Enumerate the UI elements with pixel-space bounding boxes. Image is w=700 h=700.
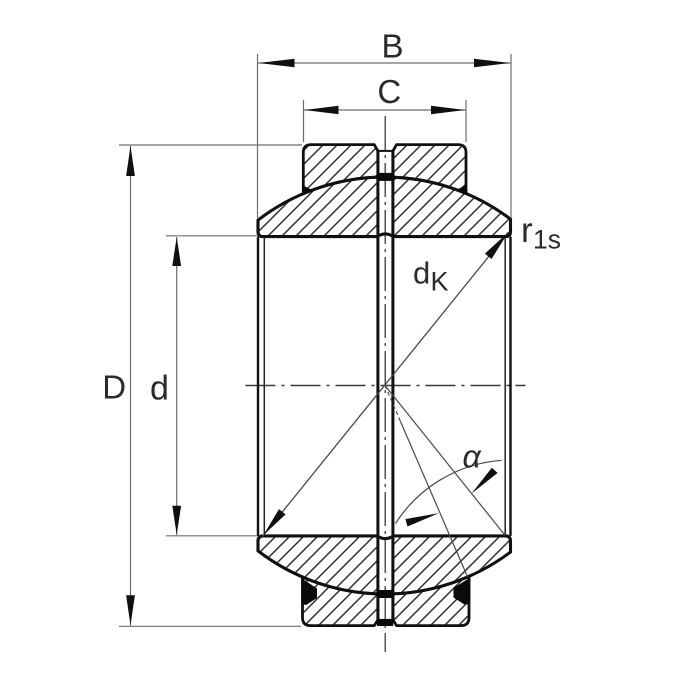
svg-text:r: r bbox=[521, 211, 533, 250]
svg-text:K: K bbox=[431, 266, 449, 296]
svg-text:C: C bbox=[377, 73, 401, 110]
svg-text:1s: 1s bbox=[533, 225, 561, 255]
svg-text:d: d bbox=[150, 369, 169, 407]
svg-text:B: B bbox=[381, 28, 403, 65]
svg-text:α: α bbox=[463, 439, 482, 475]
svg-text:D: D bbox=[102, 369, 126, 406]
svg-text:d: d bbox=[413, 255, 430, 290]
